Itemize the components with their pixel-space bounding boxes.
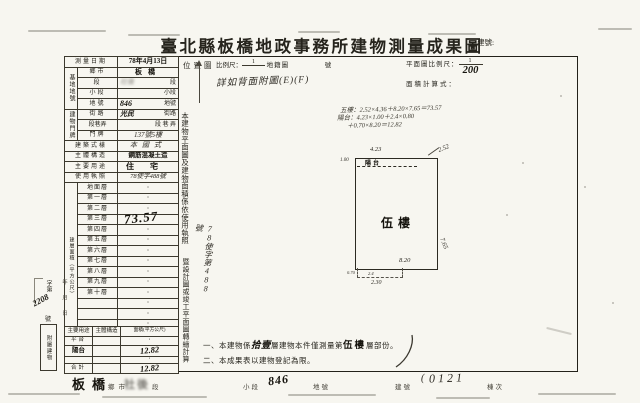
cell-value: 光民街路 (118, 109, 179, 120)
table-row: · (65, 309, 179, 320)
annex-structure (93, 337, 121, 346)
suffix: 街路 (164, 111, 176, 117)
annex-structure (93, 363, 121, 374)
survey-date-stamp: 78年4月13日 (129, 57, 168, 65)
note-1-text-b: 層建物本件僅測量第 (271, 341, 343, 350)
footer-subsection-label: 小段 (243, 381, 260, 391)
cell-value: · (118, 235, 179, 246)
table-row: 陽台 12.82 (65, 346, 179, 357)
footer-building-no: 0121 (429, 370, 466, 386)
cell-value: 137號5樓 (118, 130, 179, 141)
annex-header: 主體構造 (93, 327, 121, 337)
suffix: 段 (170, 80, 176, 86)
table-row: 建物門牌 街路 光民街路 (65, 109, 179, 120)
table-row: 地號 846地號 (65, 99, 179, 110)
table-row: 主要用途 主體構造 面積(平方公尺) (65, 327, 179, 337)
cell-value: · (118, 277, 179, 288)
footer-paren-mark: ( (421, 373, 424, 384)
license-value: 78使字488號 (130, 173, 166, 180)
annex-header: 主要用途 (65, 327, 93, 337)
scale-row: 比例尺：1 地籍圖 號 (216, 59, 331, 69)
scan-artifact (102, 396, 207, 398)
survey-date-value: 78年4月13日 (118, 57, 179, 68)
balcony-stamp: 陽台 (72, 347, 85, 354)
bottom-balcony-notch (357, 268, 403, 278)
cell-value: 小段 (118, 88, 179, 99)
cell-value: · (118, 309, 179, 320)
parcel-number: 846 (120, 100, 132, 108)
city-stamp: 板橋 (135, 68, 161, 76)
note-1: 一、本建物係拾壹層建物本件僅測量第伍樓層部份。 (203, 337, 398, 351)
row-label (78, 298, 118, 309)
plan-balcony-label: 陽台 (365, 158, 381, 167)
annex-group-box: 附屬建物 (40, 324, 57, 371)
footer-building-label: 建號 (395, 381, 412, 391)
row-label: 第三層 (78, 214, 118, 225)
cell-value: 住宅 (118, 162, 179, 173)
annex-total-label: 合計 (65, 363, 93, 374)
table-row: 第四層· (65, 225, 179, 236)
receipt-hao-label: 號 (45, 314, 51, 323)
table-row: 段 社後段 (65, 78, 179, 89)
cadastral-no-label: 號 (325, 62, 332, 69)
table-row: 第一層· (65, 193, 179, 204)
cell-value: 社後段 (118, 78, 179, 89)
receipt-zi-label: 字第 (44, 280, 53, 292)
survey-date-label: 測量日期 (65, 57, 118, 68)
dim-left-small: 1.00 (340, 158, 349, 163)
cell-value: 本國式 (118, 141, 179, 152)
balcony-area-hand: 12.82 (140, 346, 160, 356)
footer-parcel-label: 地號 (313, 381, 330, 391)
annex-structure (93, 346, 121, 357)
footer-unit-label: 棟次 (487, 381, 504, 391)
north-arrow-icon (195, 60, 205, 104)
row-label: 第一層 (78, 193, 118, 204)
row-label: 鄉市 (78, 67, 118, 78)
receipt-stamp-block: 字第 2208 號 年 月 日 (34, 276, 78, 326)
dim-notch-a: 0.70 (347, 270, 355, 275)
site-group-label: 基地地號 (65, 67, 78, 109)
use-value: 住宅 (122, 162, 174, 171)
calc-line-3: ＋0.70×8.20＝12.82 (347, 118, 402, 129)
note-2: 二、本成果表以建物登記為限。 (203, 355, 315, 366)
building-no-label: 建號: (477, 37, 494, 48)
table-row: 第九層· (65, 277, 179, 288)
annex-use: 平台 (65, 337, 93, 346)
suffix: 段 巷 弄 (155, 122, 176, 128)
style-value: 本國式 (130, 141, 166, 149)
table-row: 第六層· (65, 246, 179, 257)
annex-use: 陽台 (65, 346, 93, 357)
note-1-hand-floors: 拾壹 (251, 341, 271, 351)
scan-artifact (8, 393, 80, 395)
cell-value: · (118, 267, 179, 278)
dim-notch-b: 2.4 (368, 271, 374, 276)
scan-artifact (28, 30, 106, 32)
row-label: 地號 (78, 99, 118, 110)
scan-artifact (288, 394, 376, 396)
scale-label: 比例尺： (216, 62, 242, 69)
dim-top: 4.23 (370, 146, 381, 153)
annex-total-hand: 12.82 (140, 363, 160, 373)
cell-value: 段 巷 弄 (118, 120, 179, 131)
suffix: 小段 (164, 90, 176, 96)
footer-parcel-hand: 846 (267, 372, 290, 390)
annex-table: 主要用途 主體構造 面積(平方公尺) 平台 · 陽台 12.82 · 合計 12… (64, 326, 179, 374)
annex-group-label: 附屬建物 (45, 335, 53, 361)
table-row: 平台 · (65, 337, 179, 346)
table-row: 小段 小段 (65, 88, 179, 99)
vertical-note-part1: 本建物平面圖及建物面積係依使用執照 (180, 112, 190, 254)
plan-scale-row: 平面圖比例尺：1200 (406, 58, 483, 76)
survey-result-sheet: 臺北縣板橋地政事務所建物測量成果圖 建號: 測量日期 78年4月13日 基地地號… (0, 0, 640, 403)
cell-value: · (118, 256, 179, 267)
dim-bottom-left: 2.30 (371, 280, 382, 286)
table-row: 基地地號 鄉市 板橋 (65, 67, 179, 78)
door-group-label: 建物門牌 (65, 109, 78, 141)
dim-bottom: 8.20 (399, 257, 410, 264)
scan-speck (584, 186, 586, 188)
footer-section-label: 段 (152, 381, 159, 391)
vertical-note-part2: 暨設計圖或竣工平面圖轉繪計算 (181, 258, 191, 368)
scan-speck (612, 302, 614, 304)
note-1-floor-stamp: 伍樓 (343, 341, 366, 351)
use-label: 主要用途 (65, 162, 118, 173)
row-label: 段巷弄 (78, 120, 118, 131)
table-row: 第十層· (65, 288, 179, 299)
annex-area: · (121, 337, 179, 346)
table-row: 門牌 137號5樓 (65, 130, 179, 141)
table-row: 第八層· (65, 267, 179, 278)
table-row: 主要用途 住宅 (65, 162, 179, 173)
plan-scale-numerator: 1 (459, 58, 483, 65)
cell-value: 78使字488號 (118, 172, 179, 183)
table-row: 主體構造 鋼筋混凝土造 (65, 151, 179, 162)
receipt-date-label: 年 月 日 (60, 279, 68, 318)
check-stroke (392, 333, 418, 369)
annex-header: 面積(平方公尺) (121, 327, 179, 337)
street-name: 光民 (120, 111, 134, 118)
scan-artifact (538, 393, 616, 395)
page-title: 臺北縣板橋地政事務所建物測量成果圖 (150, 33, 494, 57)
plan-room-label: 伍樓 (381, 214, 415, 231)
left-info-table: 測量日期 78年4月13日 基地地號 鄉市 板橋 段 社後段 小段 小段 地號 … (64, 56, 179, 362)
structure-value: 鋼筋混凝土造 (129, 152, 168, 159)
plan-scale-denominator-hand: 200 (463, 65, 479, 76)
suffix: 地號 (164, 101, 176, 107)
table-row: 測量日期 78年4月13日 (65, 57, 179, 68)
cell-value: · (118, 183, 179, 194)
cell-value: 846地號 (118, 99, 179, 110)
row-label: 地面層 (78, 183, 118, 194)
scan-artifact (598, 28, 632, 30)
row-label: 第九層 (78, 277, 118, 288)
table-row: 第二層· (65, 204, 179, 215)
row-label: 段 (78, 78, 118, 89)
row-label: 第五層 (78, 235, 118, 246)
table-row: 建築式樣 本國式 (65, 141, 179, 152)
table-row: 第七層· (65, 256, 179, 267)
license-label: 使用執照 (65, 172, 118, 183)
row-label: 第七層 (78, 256, 118, 267)
table-row: 第三層· (65, 214, 179, 225)
row-label (78, 309, 118, 320)
annex-total-value: 12.82 (121, 363, 179, 374)
table-row: 使用執照 78使字488號 (65, 172, 179, 183)
scan-artifact (436, 397, 490, 399)
table-row: 建層面積（平方公尺） 地面層 · (65, 183, 179, 194)
plan-scale-fraction: 1200 (459, 58, 483, 76)
row-label: 第八層 (78, 267, 118, 278)
style-label: 建築式樣 (65, 141, 118, 152)
row-label: 門牌 (78, 130, 118, 141)
cell-value: 板橋 (118, 67, 179, 78)
cell-value: · (118, 193, 179, 204)
row-label: 第十層 (78, 288, 118, 299)
cell-value: · (118, 246, 179, 257)
area-calc-label: 面積計算式： (406, 78, 457, 88)
cadastral-map-label: 地籍圖 (267, 62, 290, 69)
cell-value: 鋼筋混凝土造 (118, 151, 179, 162)
scale-numerator: 1 (242, 59, 265, 66)
footer-section-stamp: 社後 (124, 376, 150, 392)
annex-area: 12.82 (121, 346, 179, 357)
row-label: 第六層 (78, 246, 118, 257)
row-label: 第四層 (78, 225, 118, 236)
note-1-text-a: 一、本建物係 (203, 341, 251, 350)
row-label: 第二層 (78, 204, 118, 215)
scale-fraction: 1 (242, 59, 265, 66)
table-row: 第五層· (65, 235, 179, 246)
table-row: 段巷弄 段 巷 弄 (65, 120, 179, 131)
cell-value: · (118, 298, 179, 309)
table-row: · (65, 298, 179, 309)
plan-scale-label: 平面圖比例尺： (406, 61, 459, 68)
structure-label: 主體構造 (65, 151, 118, 162)
footer-city-stamp: 板橋 (72, 374, 112, 393)
row-label: 小段 (78, 88, 118, 99)
door-number: 137號5樓 (134, 131, 162, 139)
section-stamp: 社後 (120, 79, 134, 86)
cell-value: · (118, 288, 179, 299)
table-row: 合計 12.82 (65, 363, 179, 374)
row-label: 街路 (78, 109, 118, 120)
